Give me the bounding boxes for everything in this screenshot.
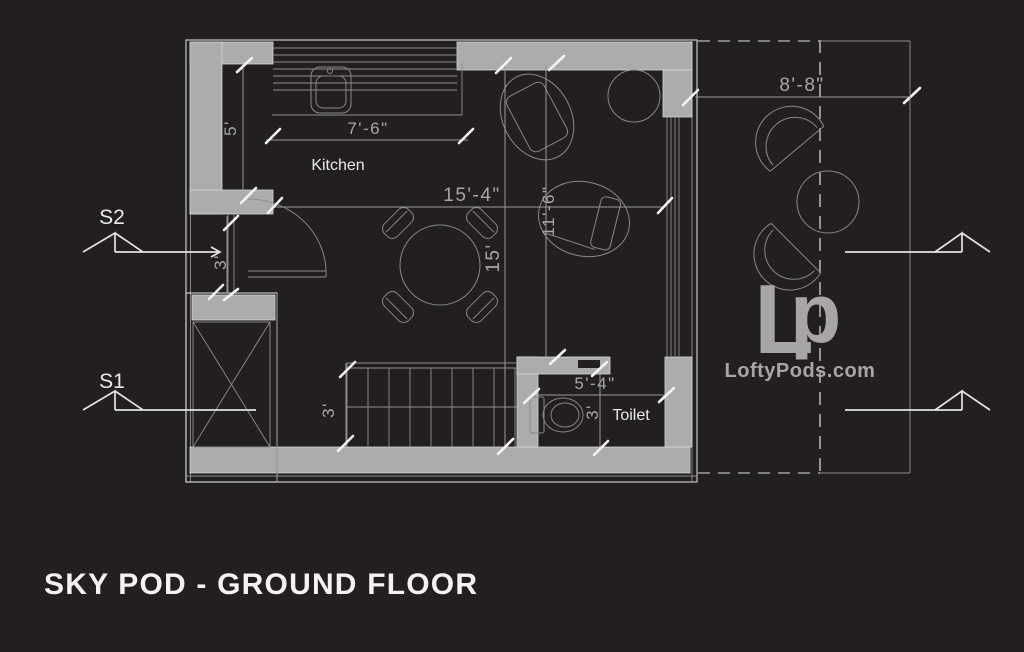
dim-sitting-depth: 11'-6" bbox=[539, 185, 558, 236]
dining-chair bbox=[464, 205, 501, 242]
logo-site-text: LoftyPods.com bbox=[725, 360, 876, 382]
dining-chair bbox=[464, 289, 501, 326]
terrace-table bbox=[797, 171, 859, 233]
dim-toilet-width: 5'-4" bbox=[574, 374, 615, 393]
dining-chair bbox=[380, 289, 417, 326]
dim-kitchen-depth: 5' bbox=[221, 120, 240, 136]
loftypods-logo: L p LoftyPods.com bbox=[725, 264, 876, 382]
terrace-chair bbox=[741, 92, 825, 172]
dim-terrace-width: 8'-8" bbox=[779, 75, 824, 96]
section-marker-s1-right bbox=[845, 391, 990, 410]
page-title: SKY POD - GROUND FLOOR bbox=[44, 568, 478, 602]
wall-topright-bar bbox=[457, 42, 692, 70]
dim-entry-opening: 3' bbox=[211, 254, 230, 270]
room-label-kitchen: Kitchen bbox=[311, 157, 364, 174]
dining-chair bbox=[380, 205, 417, 242]
dim-stair-width: 3' bbox=[319, 402, 338, 418]
section-marker-s1 bbox=[83, 391, 256, 410]
side-table bbox=[608, 70, 660, 122]
floor-plan: 7'-6" 15'-4" 5' 15' 11'-6" 3' 3' 5'-4" 3… bbox=[0, 0, 1024, 652]
dimension-lines bbox=[227, 64, 910, 447]
room-label-toilet: Toilet bbox=[612, 407, 650, 424]
drawing-sheet: 7'-6" 15'-4" 5' 15' 11'-6" 3' 3' 5'-4" 3… bbox=[0, 0, 1024, 652]
dim-living-depth: 15' bbox=[483, 243, 504, 272]
wall-kitchen-arm bbox=[190, 190, 273, 214]
logo-mark-p: p bbox=[790, 266, 841, 360]
stairs bbox=[347, 363, 517, 447]
section-label-s2: S2 bbox=[99, 206, 125, 229]
window-right bbox=[667, 117, 679, 357]
kitchen-counter bbox=[272, 64, 462, 115]
dining-table bbox=[400, 225, 480, 305]
dim-kitchen-width: 7'-6" bbox=[347, 119, 388, 138]
dim-living-width: 15'-4" bbox=[443, 185, 500, 206]
wall-right-corner bbox=[663, 70, 692, 117]
dim-toilet-depth: 3' bbox=[583, 404, 602, 420]
wall-left-spine bbox=[190, 42, 222, 214]
wall-toilet-right bbox=[665, 357, 692, 447]
section-label-s1: S1 bbox=[99, 370, 125, 393]
wall-bottom bbox=[190, 447, 690, 473]
wall-wardrobe-top bbox=[192, 295, 275, 320]
toilet-shelf-notch bbox=[578, 360, 600, 368]
section-marker-s2 bbox=[83, 233, 220, 257]
section-marker-s2-right bbox=[845, 233, 990, 252]
window-top bbox=[273, 48, 457, 90]
armchair bbox=[486, 61, 588, 172]
